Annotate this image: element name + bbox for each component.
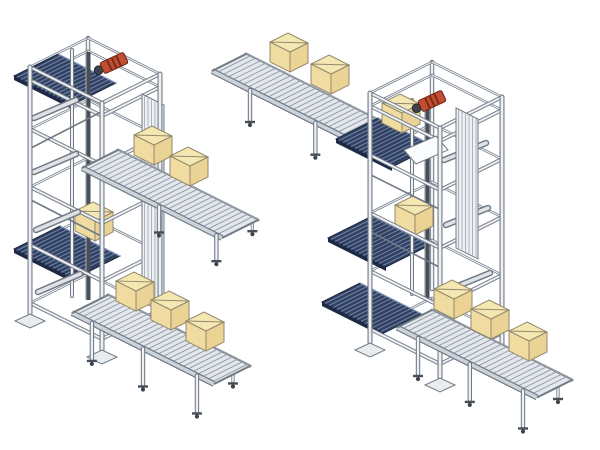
conveyor-scene (0, 0, 600, 450)
guide-rail-panel (456, 108, 478, 259)
lift-column (86, 52, 88, 300)
scene-svg (0, 0, 600, 450)
vertical-conveyor-product-illustration (0, 0, 600, 450)
